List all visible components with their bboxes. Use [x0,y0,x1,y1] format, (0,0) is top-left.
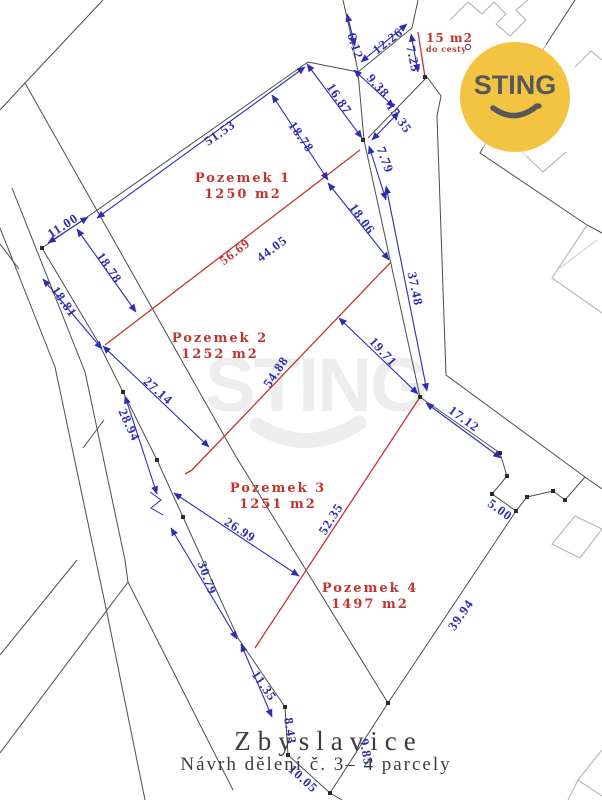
squiggle-mark [150,492,163,515]
dimension-lines [43,14,501,717]
logo-text: STING [460,70,570,101]
map-subtitle: Návrh dělení č. 3– 4 parcely [30,755,602,775]
point-marker-circle [465,44,470,49]
title-block: Zbyslavice Návrh dělení č. 3– 4 parcely [0,728,602,775]
logo-smile-icon [460,100,570,140]
survey-points [40,75,567,795]
map-title: Zbyslavice [55,728,602,754]
division-lines-red [105,32,425,648]
sting-logo: STING [460,42,570,152]
cadastral-plan: STING [0,0,602,800]
